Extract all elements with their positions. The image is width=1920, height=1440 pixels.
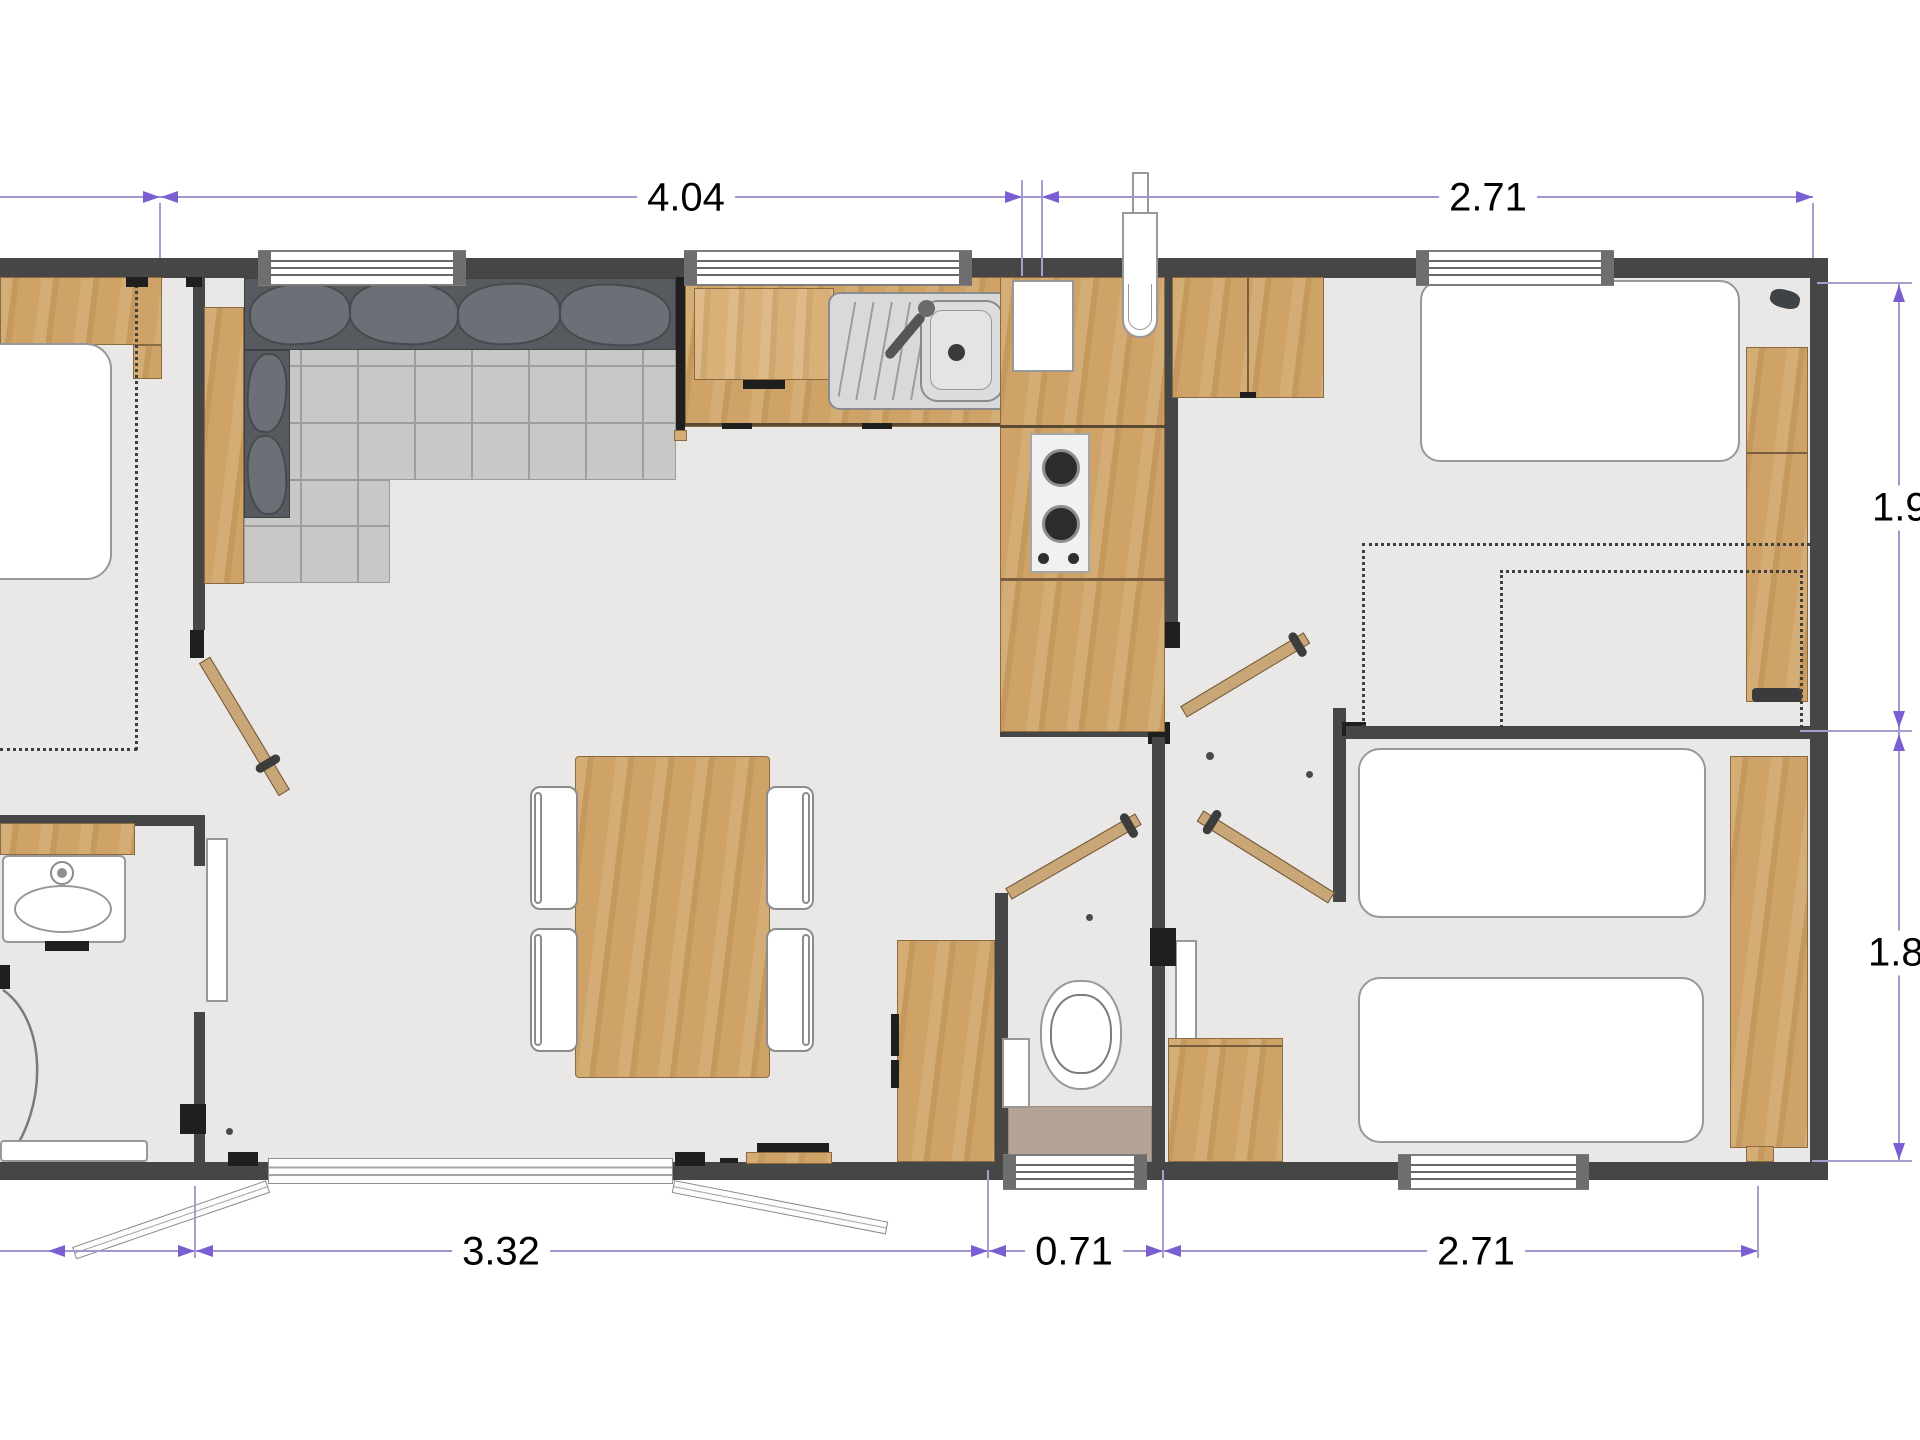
appliance-niche (1012, 280, 1074, 372)
right-wall (1810, 258, 1828, 1180)
bathroom-basin (2, 855, 126, 943)
bedrooms-divider-wall (1346, 726, 1810, 739)
master-bed (0, 343, 112, 580)
dim-arrow (1796, 191, 1813, 203)
dim-ext (1817, 282, 1912, 284)
dim-arrow (989, 1245, 1006, 1257)
dim-ext (1812, 1160, 1912, 1162)
tv-icon (720, 1158, 738, 1163)
dim-label-bottom-bedroom: 2.71 (1427, 1230, 1525, 1275)
dim-label-top-bedroom: 2.71 (1439, 176, 1537, 221)
sink-faucet-head-icon (918, 300, 935, 317)
sofa-pillow-icon (247, 280, 353, 349)
bathroom-door (206, 838, 228, 1002)
entrance-door-leaf-right (672, 1180, 888, 1234)
wall-bracket (126, 277, 148, 287)
dim-arrow (1005, 191, 1022, 203)
water-heater (1122, 212, 1158, 338)
dim-arrow (1893, 1143, 1905, 1160)
desk-edge (1169, 1045, 1282, 1047)
toilet (1040, 980, 1122, 1090)
wardrobe-end-cap (1752, 688, 1802, 702)
window-kitchen (684, 250, 972, 286)
dim-arrow (1164, 1245, 1181, 1257)
wardrobe-divider (1247, 278, 1249, 397)
gas-hob (1030, 433, 1090, 573)
dining-chair (530, 786, 578, 910)
chair-back (534, 792, 542, 904)
dim-label-top-kitchen: 4.04 (637, 176, 735, 221)
dim-arrow (196, 1245, 213, 1257)
pantry-cabinet (897, 940, 995, 1162)
door-handle-icon (1287, 631, 1309, 659)
dining-chair (766, 786, 814, 910)
dining-chair (766, 928, 814, 1052)
bedroom2-bed2 (1358, 977, 1704, 1143)
door-stop-pin (1206, 752, 1214, 760)
bunk-outline-dotted-inner (1800, 570, 1803, 728)
bunk-outline-dotted (1362, 543, 1810, 546)
sink-bowl (920, 300, 1004, 402)
dim-arrow (161, 191, 178, 203)
bedroom1-wardrobe-right (1746, 347, 1808, 702)
cabinet-handle2 (891, 1060, 899, 1088)
toilet-seat (1050, 994, 1112, 1074)
kitchen-cabinet-front (694, 288, 834, 380)
wardrobe-handle (1240, 392, 1256, 398)
dim-ext (159, 203, 161, 258)
burner-icon (1042, 505, 1080, 543)
bedroom2-wardrobe-tab (1746, 1146, 1774, 1162)
counter-edge-tick2 (862, 423, 892, 429)
sofa-pillow-icon (244, 434, 289, 517)
dim-ext (1812, 203, 1814, 258)
dim-line-top (0, 196, 1813, 198)
vanity-handle (45, 941, 89, 951)
hob-knob-icon (1038, 553, 1049, 564)
door-hinge-block (1150, 928, 1176, 966)
kitchen-column-line2 (1000, 578, 1165, 581)
bunk-outline-dotted (1362, 543, 1365, 728)
window-bedroom1 (1416, 250, 1614, 286)
bathroom-right-wall-upper (194, 826, 205, 866)
dim-ext (1800, 730, 1912, 732)
bedroom2-bed (1358, 748, 1706, 918)
door-stop-pin (1086, 914, 1093, 921)
counter-edge-tick (722, 423, 752, 429)
window-wc (1003, 1154, 1147, 1190)
sink-drainboard (838, 302, 926, 400)
bay-cap-right (675, 1152, 705, 1166)
chair-back (534, 934, 542, 1046)
dim-arrow (1893, 734, 1905, 751)
dim-arrow (178, 1245, 195, 1257)
toilet-cistern (1002, 1038, 1030, 1108)
dim-label-bottom-living: 3.32 (452, 1230, 550, 1275)
bedroom1-bed (1420, 280, 1740, 462)
dim-arrow (971, 1245, 988, 1257)
tv-board (746, 1152, 832, 1164)
hallway-wall (1333, 708, 1346, 902)
door-stop-pin (1306, 771, 1313, 778)
dim-arrow (48, 1245, 65, 1257)
burner-icon (1042, 449, 1080, 487)
bay-cap-left (228, 1152, 258, 1166)
bunk-outline-dotted-inner (1500, 570, 1803, 573)
chair-back (802, 934, 810, 1046)
master-overhead-dotted-line2 (0, 748, 137, 751)
dim-arrow (1893, 711, 1905, 728)
kitchen-sink (828, 292, 1010, 410)
dim-arrow (143, 191, 160, 203)
door-stop-pin (226, 1128, 233, 1135)
sofa-pillow-icon (455, 280, 562, 347)
bathroom-right-wall-lower (194, 1012, 205, 1162)
hob-knob-icon (1068, 553, 1079, 564)
parked-door-leaf (1175, 940, 1197, 1042)
bedroom2-wardrobe (1730, 756, 1808, 1148)
basin-faucet-dot (57, 868, 67, 878)
basin-bowl (14, 885, 112, 933)
bay-threshold (268, 1158, 673, 1184)
kitchen-column-line (1000, 425, 1165, 428)
water-heater-inner (1128, 284, 1152, 330)
wall-bracket2 (186, 277, 202, 287)
tv-screen (757, 1143, 829, 1152)
dim-arrow (1741, 1245, 1758, 1257)
bathroom-door-stop (180, 1104, 206, 1134)
dim-label-right-bedroom1: 1.90 (1866, 486, 1920, 531)
sofa-back (244, 278, 676, 350)
sink-drain-icon (948, 344, 965, 361)
dim-arrow (1042, 191, 1059, 203)
bunk-outline-dotted-inner (1500, 570, 1503, 728)
master-overhead-dotted-line (135, 279, 138, 750)
bedroom1-wardrobe (1172, 277, 1324, 398)
sofa-pillow-icon (557, 280, 673, 350)
sofa-seat (244, 348, 676, 480)
sofa-pillow-icon (347, 278, 460, 348)
door-handle-icon (1118, 812, 1139, 840)
bedroom2-desk (1168, 1038, 1283, 1162)
window-bedroom2 (1398, 1154, 1589, 1190)
window-living (258, 250, 466, 286)
wc-left-wall (995, 893, 1008, 1162)
bedroom-door-stop (190, 630, 204, 658)
shower-tray (0, 1140, 148, 1162)
dim-label-right-bedroom2: 1.80 (1862, 931, 1920, 976)
dim-label-bottom-wc: 0.71 (1025, 1230, 1123, 1275)
wardrobe-divider (1747, 452, 1807, 454)
kitchen-drawer-handle (743, 380, 785, 389)
floor-plan: 4.04 2.71 3.32 0.71 2.71 1.90 1.80 (0, 0, 1920, 1440)
sofa-pillow-icon (244, 352, 289, 435)
dim-arrow (1893, 285, 1905, 302)
sofa-side-cushions (244, 350, 290, 518)
bathroom-vanity (0, 823, 135, 855)
chair-back (802, 792, 810, 904)
sofa-arm (204, 307, 244, 584)
entrance-door-leaf-left (72, 1180, 270, 1259)
cabinet-handle (891, 1014, 899, 1056)
kitchen-side-panel (676, 277, 685, 433)
dim-arrow (1146, 1245, 1163, 1257)
dining-table (575, 756, 770, 1078)
water-heater-pipe (1132, 172, 1149, 216)
dining-chair (530, 928, 578, 1052)
kitchen-side-panel-cap (674, 430, 687, 441)
